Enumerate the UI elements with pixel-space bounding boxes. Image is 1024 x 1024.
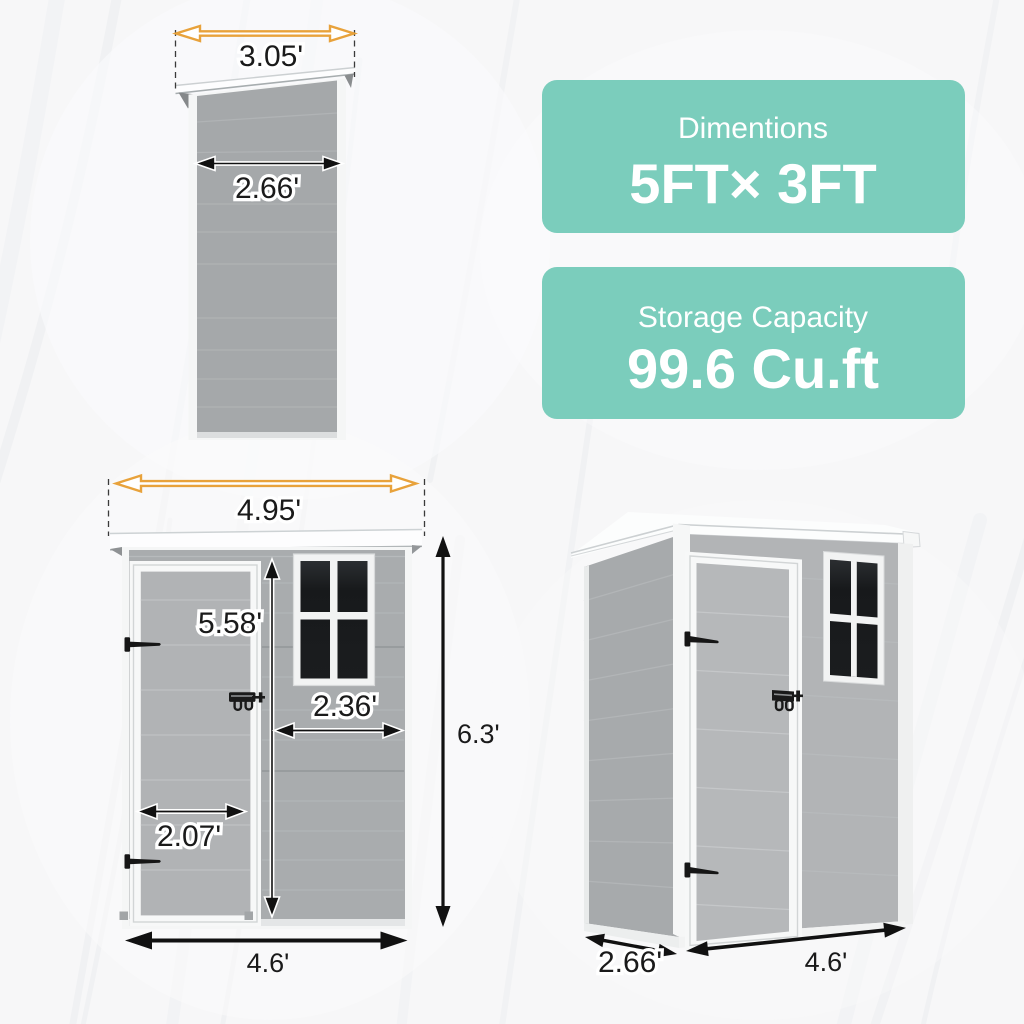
svg-text:99.6 Cu.ft: 99.6 Cu.ft [627, 337, 879, 400]
svg-text:6.3': 6.3' [457, 719, 500, 749]
svg-text:Storage Capacity: Storage Capacity [638, 301, 868, 334]
svg-text:2.66': 2.66' [235, 172, 299, 205]
svg-text:Dimentions: Dimentions [678, 112, 828, 145]
svg-text:2.66': 2.66' [598, 946, 662, 979]
svg-text:2.36': 2.36' [313, 690, 377, 723]
svg-text:4.6': 4.6' [805, 947, 848, 977]
svg-text:5.58': 5.58' [198, 607, 262, 640]
svg-text:4.95': 4.95' [237, 494, 301, 527]
svg-text:5FT× 3FT: 5FT× 3FT [629, 152, 876, 215]
svg-text:2.07': 2.07' [157, 820, 221, 853]
svg-text:3.05': 3.05' [239, 40, 303, 73]
svg-text:4.6': 4.6' [247, 948, 290, 978]
